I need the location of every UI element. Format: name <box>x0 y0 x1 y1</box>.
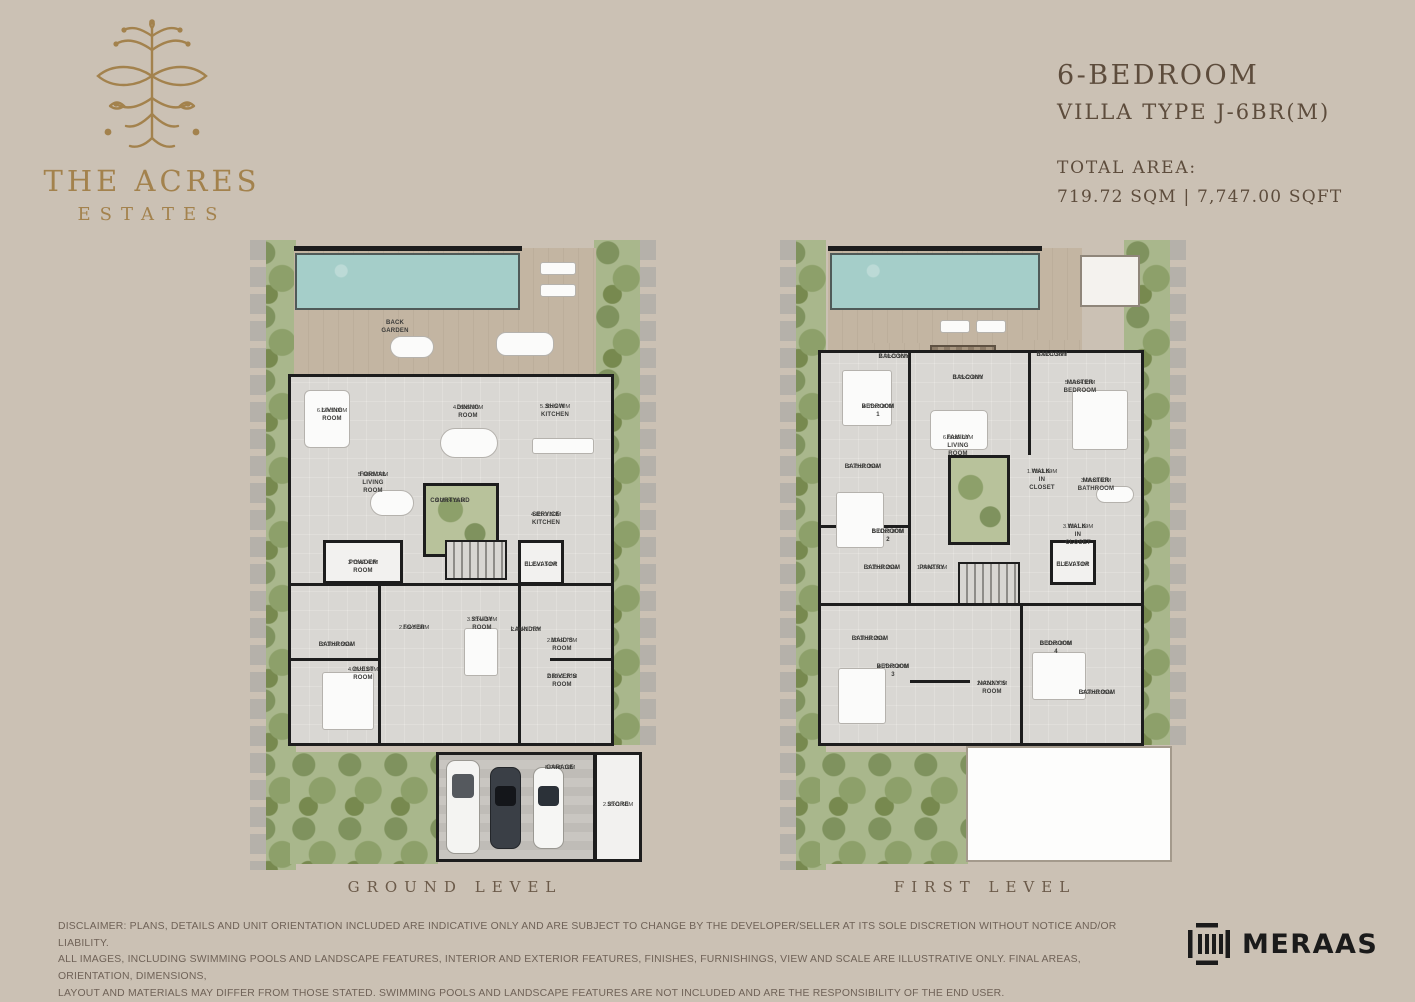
room-dims: 2.30x2.70M <box>547 638 577 646</box>
acres-emblem-icon <box>77 14 227 154</box>
disclaimer-text: DISCLAIMER: PLANS, DETAILS AND UNIT ORIE… <box>58 919 1148 1002</box>
interior-wall <box>908 352 911 603</box>
white-car <box>533 767 564 849</box>
room-dims: 3.10x2.25M <box>855 636 885 644</box>
brand-subname: ESTATES <box>40 204 264 225</box>
unit-header: 6-BEDROOM VILLA TYPE J-6BR(M) TOTAL AREA… <box>1057 60 1387 207</box>
room-dims: 2.75x2.05M <box>848 464 878 472</box>
first-level-caption: FIRST LEVEL <box>780 878 1190 896</box>
interior-wall <box>290 583 612 586</box>
meraas-wordmark: MERAAS <box>1242 929 1378 960</box>
meraas-logo: MERAAS <box>1186 921 1378 967</box>
paving-left <box>780 240 796 870</box>
paving-left <box>250 240 266 870</box>
room-dims: 3.75x2.40M <box>348 560 378 568</box>
brand-name: THE ACRES <box>40 164 264 198</box>
room-dims: 3.15x2.25M <box>867 565 897 573</box>
room-dims: 1.60x2.50M <box>917 565 947 573</box>
room-dims: 3.10x1.50M <box>1037 352 1067 360</box>
dark-car <box>490 767 521 849</box>
interior-wall <box>1028 352 1031 455</box>
kitchen-island <box>532 438 594 454</box>
pickup-truck <box>446 760 480 854</box>
total-area-label: TOTAL AREA: <box>1057 158 1387 178</box>
interior-wall <box>290 658 380 661</box>
room-dims: 2.10x2.20M <box>547 674 577 682</box>
interior-wall <box>550 658 612 661</box>
interior-wall <box>378 585 381 744</box>
disclaimer-line-2: ALL IMAGES, INCLUDING SWIMMING POOLS AND… <box>58 952 1148 985</box>
room-dims: 3.10x1.80M <box>1063 524 1093 532</box>
pool-edge-wall <box>294 246 522 251</box>
room-dims: 5.60x5.00M <box>358 472 388 480</box>
room-dims: 4.75x3.80M <box>878 664 908 672</box>
brand-block: THE ACRES ESTATES <box>40 14 264 225</box>
unit-subtitle: VILLA TYPE J-6BR(M) <box>1057 100 1387 124</box>
swimming-pool <box>830 253 1040 310</box>
room-dims: 3.30x5.00M <box>1041 641 1071 649</box>
garage-void-below <box>966 746 1172 862</box>
first-level-plan: BALCONY2.70x3.95M BALCONY3.75x2.00M BALC… <box>780 240 1190 870</box>
garden-sofa <box>390 336 434 358</box>
room-dims: 3.75x4.50M <box>467 617 497 625</box>
room-dims: 2.25x1.60M <box>603 802 633 810</box>
room-dims: 2.70x3.95M <box>879 354 909 362</box>
garden-below <box>820 752 968 864</box>
unit-title: 6-BEDROOM <box>1057 60 1387 91</box>
interior-wall <box>820 603 1142 606</box>
room-dims: 2.00x1.75M <box>511 627 541 635</box>
pool-edge-wall <box>828 246 1042 251</box>
swimming-pool <box>295 253 520 310</box>
room-dims: 3.95x4.05M <box>435 498 465 506</box>
front-garden <box>290 752 438 864</box>
interior-wall <box>910 680 970 683</box>
staircase <box>445 540 507 580</box>
room-dims: 1.75x1.50M <box>1058 562 1088 570</box>
interior-wall <box>1020 606 1023 744</box>
paving-right <box>640 240 656 745</box>
room-dims: 2.60x2.30M <box>977 681 1007 689</box>
study-desk <box>464 628 498 676</box>
room-dims: 5.00x3.80M <box>873 529 903 537</box>
brochure-page: THE ACRES ESTATES 6-BEDROOM VILLA TYPE J… <box>0 0 1415 1000</box>
room-dims: 1.70x3.80M <box>1027 469 1057 477</box>
sun-lounger <box>540 284 576 297</box>
room-dims: 4.35x5.00M <box>453 405 483 413</box>
ground-level-plan: BACK GARDEN LIVING ROOM6.60x5.00M DINING… <box>250 240 660 870</box>
room-dims: 4.75x3.80M <box>863 404 893 412</box>
sun-lounger <box>940 320 970 333</box>
room-dims: 6.60x5.00M <box>317 408 347 416</box>
room-dims: 3.05x3.60M <box>1081 478 1111 486</box>
room-dims: 3.75x2.00M <box>953 375 983 383</box>
room-dims: 1.75x1.50M <box>526 562 556 570</box>
disclaimer-line-1: DISCLAIMER: PLANS, DETAILS AND UNIT ORIE… <box>58 919 1148 952</box>
bed-master <box>1072 390 1128 450</box>
meraas-icon <box>1186 921 1232 967</box>
room-dims: 4.85x3.50M <box>531 512 561 520</box>
sun-lounger <box>976 320 1006 333</box>
room-dims: 5.10x4.95M <box>1065 380 1095 388</box>
room-dims: 2.20x3.65M <box>1082 690 1112 698</box>
dining-table <box>440 428 498 458</box>
interior-wall <box>518 585 521 744</box>
room-dims: 8.00x6.10M <box>545 765 575 773</box>
room-dims: 3.10x2.55M <box>322 642 352 650</box>
courtyard-void <box>948 455 1010 545</box>
room-dims: 2.55x3.50M <box>399 625 429 633</box>
sun-lounger <box>540 262 576 275</box>
room-dims: 4.75x3.80M <box>348 667 378 675</box>
outdoor-dining-table <box>496 332 554 356</box>
room-dims: 6.00x5.00M <box>943 435 973 443</box>
room-dims: 5.35x5.70M <box>540 404 570 412</box>
ground-level-caption: GROUND LEVEL <box>250 878 660 896</box>
staircase <box>958 562 1020 606</box>
room-name: BACK GARDEN <box>381 320 408 336</box>
paving-right <box>1170 240 1186 745</box>
total-area-value: 719.72 SQM | 7,747.00 SQFT <box>1057 187 1387 207</box>
roof-canopy <box>1080 255 1140 307</box>
